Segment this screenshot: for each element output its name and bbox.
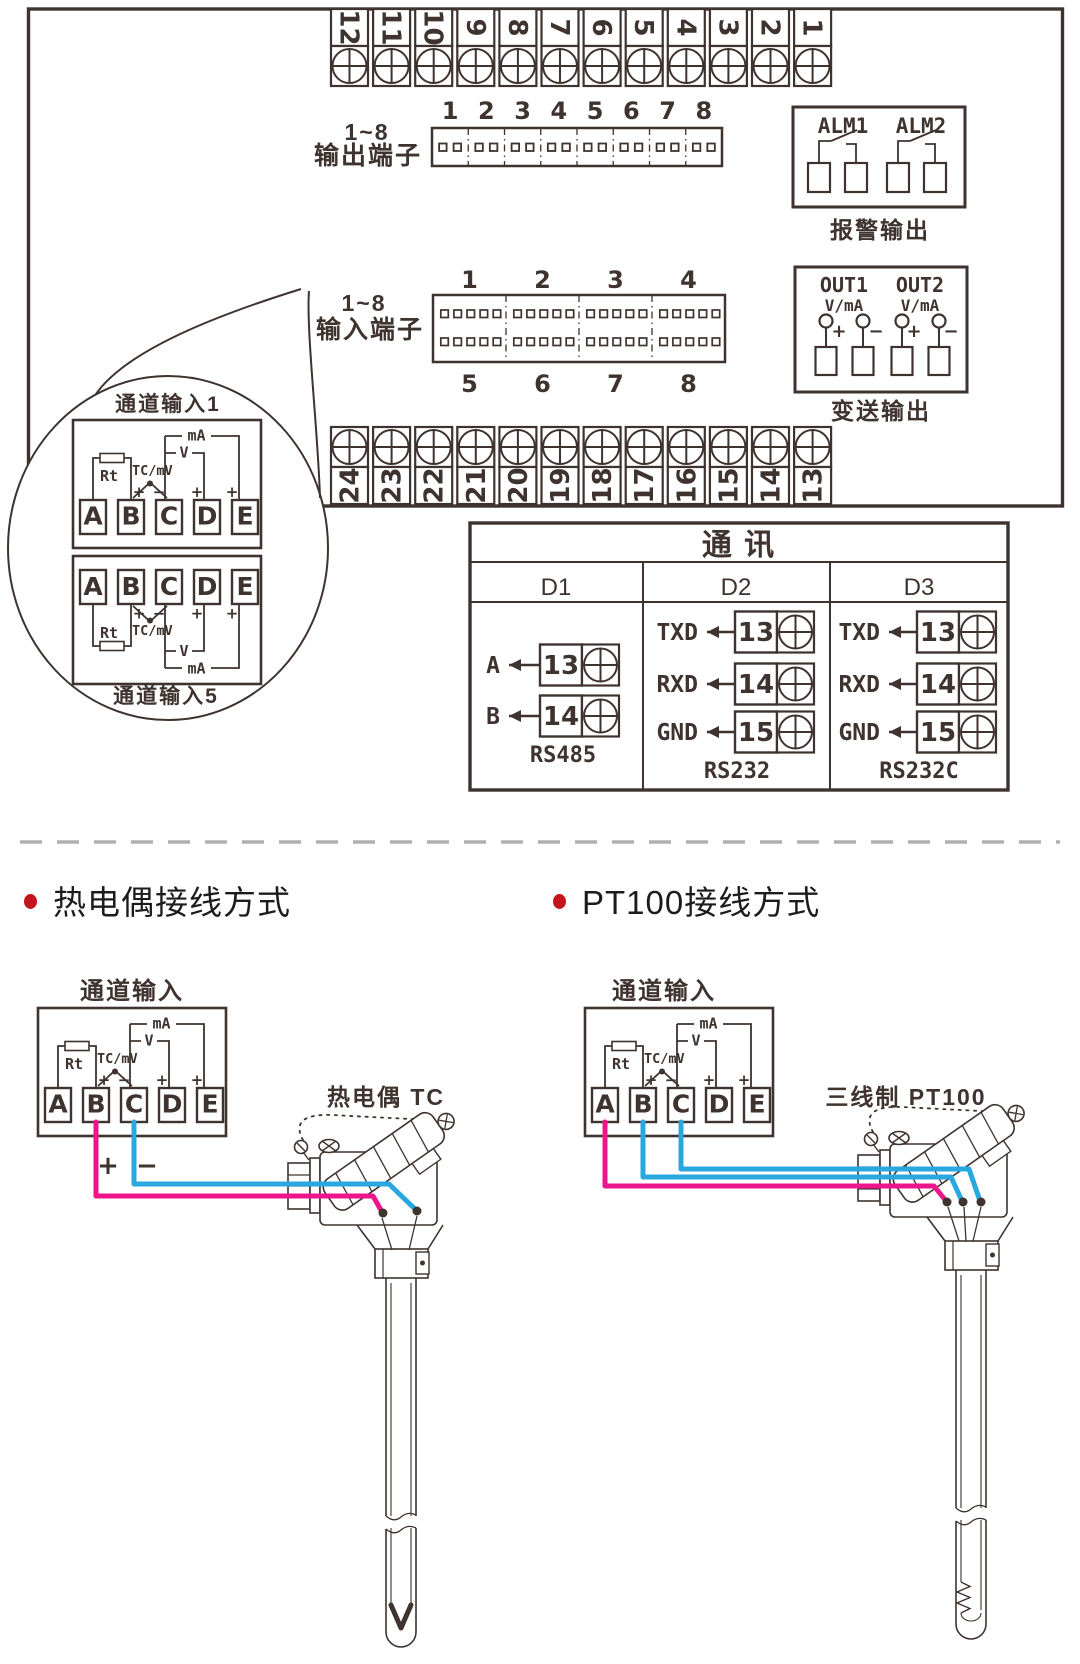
terminal-13: 13 xyxy=(794,427,831,504)
terminal-9: 9 xyxy=(457,9,494,86)
balloon-graphics-layer: ABCDERtTC/mVVmA+−++ABCDERtTC/mVVmA+−++ xyxy=(8,289,328,720)
terminal-number: 11 xyxy=(376,9,406,45)
terminal-number: 17 xyxy=(630,467,660,503)
pt100-label: 三线制 PT100 xyxy=(825,1084,986,1110)
terminal-20: 20 xyxy=(499,427,536,504)
terminal-6: 6 xyxy=(584,9,621,86)
v-label: V xyxy=(179,642,188,660)
section-heading-pt100: PT100接线方式 xyxy=(553,876,820,924)
channel-terminal-letter: D xyxy=(197,572,218,601)
terminal-number: 20 xyxy=(504,467,534,503)
terminal-18: 18 xyxy=(584,427,621,504)
out1-vma-label: V/mA xyxy=(825,296,864,315)
plus-sign: + xyxy=(191,1071,204,1089)
plus-sign: + xyxy=(191,605,204,623)
channel-terminal-letter: E xyxy=(236,572,253,601)
tcmv-label: TC/mV xyxy=(132,623,173,639)
comm-table: D1A13B14RS485D2TXD13RXD14GND15RS232D3TXD… xyxy=(470,523,1008,790)
channel-terminal-letter: E xyxy=(748,1090,765,1119)
terminal-8: 8 xyxy=(499,9,536,86)
channel-terminal-letter: A xyxy=(48,1090,68,1119)
input-section-number: 2 xyxy=(534,266,551,294)
channel-input-5-title: 通道输入5 xyxy=(113,684,219,708)
ma-label: mA xyxy=(187,660,205,678)
wire-junction-dot xyxy=(959,1198,968,1207)
channel-input-box: ABCDERtTC/mVVmA+−++ xyxy=(73,420,261,548)
ma-label: mA xyxy=(699,1015,717,1033)
comm-row-B: B14 xyxy=(486,696,619,737)
input-terminals-label: 输入端子 xyxy=(316,315,424,344)
channel-terminal-letter: B xyxy=(86,1090,105,1119)
comm-terminal-number: 14 xyxy=(738,670,774,700)
comm-signal-label: A xyxy=(486,653,500,679)
tcmv-label: TC/mV xyxy=(132,463,173,479)
output-pin-number: 5 xyxy=(587,97,604,125)
terminal-number: 6 xyxy=(586,18,616,36)
output-pin-number: 2 xyxy=(478,97,495,125)
channel-terminal-letter: B xyxy=(121,502,140,531)
comm-signal-label: RXD xyxy=(656,672,698,698)
terminal-11: 11 xyxy=(373,9,410,86)
wiring-diagram: 1211109876543212423222120191817161514131… xyxy=(0,0,1080,1664)
v-label: V xyxy=(179,444,188,462)
minus-sign: − xyxy=(118,1071,131,1089)
terminal-22: 22 xyxy=(415,427,452,504)
terminal-number: 19 xyxy=(546,467,576,503)
comm-signal-label: RXD xyxy=(838,672,880,698)
comm-signal-label: TXD xyxy=(656,620,698,646)
input-section-number: 1 xyxy=(461,266,478,294)
comm-interface-caption: RS232C xyxy=(879,759,958,784)
input-section-number: 3 xyxy=(607,266,624,294)
terminal-19: 19 xyxy=(542,427,579,504)
minus-sign: − xyxy=(665,1071,678,1089)
output-pin-number: 4 xyxy=(550,97,567,125)
input-section-number: 5 xyxy=(461,370,478,398)
channel-input-box: ABCDERtTC/mVVmA+−++ xyxy=(38,1008,226,1136)
wire-plus-sign: + xyxy=(97,1151,119,1181)
comm-row-RXD: RXD14 xyxy=(838,664,996,705)
plus-sign: + xyxy=(226,483,239,501)
terminal-5: 5 xyxy=(626,9,663,86)
terminal-number: 10 xyxy=(418,9,448,45)
tcmv-label: TC/mV xyxy=(644,1051,685,1067)
out2-label: OUT2 xyxy=(896,273,944,297)
terminal-number: 9 xyxy=(460,18,490,36)
rt-label: Rt xyxy=(612,1055,630,1073)
plus-sign: + xyxy=(156,1071,169,1089)
bottom-terminal-strip: 242322212019181716151413 xyxy=(331,427,831,504)
terminal-12: 12 xyxy=(331,9,368,86)
channel-terminal-letter: C xyxy=(125,1090,143,1119)
terminal-4: 4 xyxy=(668,9,705,86)
comm-column-name: D2 xyxy=(721,574,752,601)
channel-terminal-letter: E xyxy=(201,1090,218,1119)
rt-label: Rt xyxy=(100,624,118,642)
alarm-output-caption: 报警输出 xyxy=(830,217,930,243)
channel-input-box: ABCDERtTC/mVVmA+−++ xyxy=(73,556,261,684)
plus-sign: + xyxy=(703,1071,716,1089)
output-pin-number: 7 xyxy=(659,97,676,125)
terminal-number: 21 xyxy=(462,467,492,503)
wire-junction-dot xyxy=(379,1209,388,1218)
terminal-number: 24 xyxy=(336,467,366,503)
v-label: V xyxy=(144,1032,153,1050)
thermocouple-label: 热电偶 TC xyxy=(327,1084,445,1110)
red-bullet-icon xyxy=(553,894,566,909)
channel-terminal-letter: A xyxy=(83,502,103,531)
channel-terminal-letter: B xyxy=(121,572,140,601)
out1-label: OUT1 xyxy=(820,273,868,297)
comm-terminal-number: 13 xyxy=(738,618,774,648)
out2-vma-label: V/mA xyxy=(901,296,940,315)
comm-row-TXD: TXD13 xyxy=(838,612,996,653)
terminal-number: 15 xyxy=(714,467,744,503)
output-connector: 12345678 xyxy=(432,97,722,166)
comm-interface-caption: RS232 xyxy=(704,759,770,784)
terminal-1: 1 xyxy=(794,9,831,86)
comm-row-TXD: TXD13 xyxy=(656,612,814,653)
channel-terminal-letter: B xyxy=(633,1090,652,1119)
terminal-number: 3 xyxy=(712,18,742,36)
comm-column-D2: D2TXD13RXD14GND15RS232 xyxy=(656,574,814,784)
comm-terminal-number: 13 xyxy=(920,618,956,648)
out1-minus-sign: − xyxy=(868,321,883,342)
terminal-10: 10 xyxy=(415,9,452,86)
rt-label: Rt xyxy=(100,467,118,485)
out2-plus-sign: + xyxy=(906,321,921,342)
terminal-number: 7 xyxy=(544,18,574,36)
channel-terminal-letter: D xyxy=(709,1090,730,1119)
minus-sign: − xyxy=(153,605,166,623)
channel-terminal-letter: C xyxy=(160,572,178,601)
terminal-2: 2 xyxy=(752,9,789,86)
channel-terminal-letter: D xyxy=(197,502,218,531)
ma-label: mA xyxy=(187,427,205,445)
channel-terminal-letter: E xyxy=(236,502,253,531)
wire-junction-dot xyxy=(413,1207,422,1216)
section-heading-text: PT100接线方式 xyxy=(582,876,820,924)
terminal-3: 3 xyxy=(710,9,747,86)
comm-row-RXD: RXD14 xyxy=(656,664,814,705)
plus-sign: + xyxy=(133,605,146,623)
comm-column-name: D3 xyxy=(904,574,935,601)
terminal-number: 5 xyxy=(628,18,658,36)
comm-terminal-number: 13 xyxy=(543,651,579,681)
comm-column-name: D1 xyxy=(541,574,572,601)
plus-sign: + xyxy=(645,1071,658,1089)
left-channel-input-title: 通道输入 xyxy=(80,977,184,1005)
terminal-14: 14 xyxy=(752,427,789,504)
channel-input-1-title: 通道输入1 xyxy=(115,392,221,416)
channel-terminal-letter: C xyxy=(160,502,178,531)
output-pin-number: 8 xyxy=(695,97,712,125)
pt100-illustration xyxy=(858,1092,1039,1639)
output-terminals-label: 输出端子 xyxy=(314,141,422,170)
terminal-24: 24 xyxy=(331,427,368,504)
input-connector: 15263748 xyxy=(433,266,725,398)
alarm2-label: ALM2 xyxy=(896,114,947,138)
rt-label: Rt xyxy=(65,1055,83,1073)
terminal-17: 17 xyxy=(626,427,663,504)
channel-terminal-letter: D xyxy=(162,1090,183,1119)
out2-minus-sign: − xyxy=(943,321,958,342)
wiring-diagram-page: 1211109876543212423222120191817161514131… xyxy=(0,0,1080,1664)
terminal-number: 12 xyxy=(334,9,364,45)
wire-junction-dot xyxy=(977,1198,986,1207)
ma-label: mA xyxy=(152,1015,170,1033)
minus-sign: − xyxy=(153,483,166,501)
output-pin-number: 3 xyxy=(514,97,531,125)
comm-row-A: A13 xyxy=(486,645,619,686)
plus-sign: + xyxy=(191,483,204,501)
wire-junction-dot xyxy=(943,1198,952,1207)
section-heading-text: 热电偶接线方式 xyxy=(53,876,291,924)
channel-terminal-letter: C xyxy=(672,1090,690,1119)
comm-signal-label: TXD xyxy=(838,620,880,646)
channel-input-box: ABCDERtTC/mVVmA+−++ xyxy=(585,1008,773,1136)
comm-signal-label: B xyxy=(486,704,500,730)
input-terminals-range-label: 1~8 xyxy=(341,290,386,316)
terminal-number: 18 xyxy=(588,467,618,503)
tcmv-label: TC/mV xyxy=(97,1051,138,1067)
plus-sign: + xyxy=(738,1071,751,1089)
terminal-number: 4 xyxy=(670,18,700,36)
input-section-number: 8 xyxy=(680,370,697,398)
comm-terminal-number: 14 xyxy=(543,702,579,732)
wire-layer xyxy=(96,1122,986,1218)
right-channel-input-title: 通道输入 xyxy=(612,977,716,1005)
plus-sign: + xyxy=(98,1071,111,1089)
terminal-23: 23 xyxy=(373,427,410,504)
comm-terminal-number: 15 xyxy=(920,718,956,748)
terminal-number: 13 xyxy=(799,467,829,503)
terminal-16: 16 xyxy=(668,427,705,504)
section-heading-thermocouple: 热电偶接线方式 xyxy=(24,876,291,924)
input-section-number: 7 xyxy=(607,370,624,398)
comm-table-title: 通 讯 xyxy=(702,529,776,562)
terminal-15: 15 xyxy=(710,427,747,504)
comm-terminal-number: 15 xyxy=(738,718,774,748)
v-label: V xyxy=(691,1032,700,1050)
comm-column-D1: D1A13B14RS485 xyxy=(486,574,619,768)
transmit-output-caption: 变送输出 xyxy=(831,398,931,424)
input-section-number: 4 xyxy=(680,266,697,294)
red-bullet-icon xyxy=(24,894,37,909)
comm-row-GND: GND15 xyxy=(656,712,814,753)
comm-row-GND: GND15 xyxy=(838,712,996,753)
comm-terminal-number: 14 xyxy=(920,670,956,700)
terminal-number: 23 xyxy=(378,467,408,503)
channel-terminal-letter: A xyxy=(83,572,103,601)
terminal-number: 14 xyxy=(757,467,787,503)
comm-signal-label: GND xyxy=(838,720,880,746)
terminal-number: 22 xyxy=(420,467,450,503)
terminal-number: 2 xyxy=(755,18,785,36)
comm-column-D3: D3TXD13RXD14GND15RS232C xyxy=(838,574,996,784)
terminal-number: 8 xyxy=(502,18,532,36)
output-pin-number: 1 xyxy=(442,97,459,125)
out1-plus-sign: + xyxy=(831,321,846,342)
plus-sign: + xyxy=(226,605,239,623)
terminal-number: 16 xyxy=(672,467,702,503)
comm-signal-label: GND xyxy=(656,720,698,746)
terminal-21: 21 xyxy=(457,427,494,504)
input-section-number: 6 xyxy=(534,370,551,398)
channel-terminal-letter: A xyxy=(595,1090,615,1119)
terminal-7: 7 xyxy=(542,9,579,86)
wire-minus-sign: − xyxy=(136,1151,158,1181)
alarm1-label: ALM1 xyxy=(818,114,869,138)
terminal-number: 1 xyxy=(797,18,827,36)
comm-interface-caption: RS485 xyxy=(530,743,596,768)
plus-sign: + xyxy=(133,483,146,501)
output-pin-number: 6 xyxy=(623,97,640,125)
top-terminal-strip: 121110987654321 xyxy=(331,9,831,86)
